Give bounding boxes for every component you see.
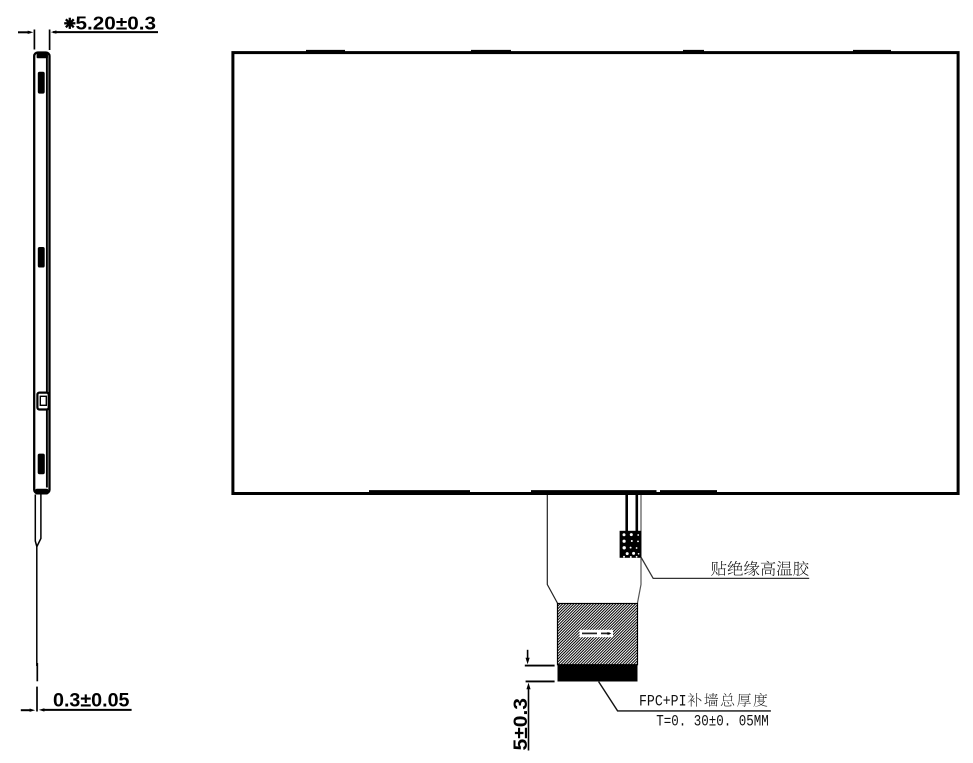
svg-text:T=0. 30±0. 05MM: T=0. 30±0. 05MM [656, 713, 769, 731]
svg-text:0.3±0.05: 0.3±0.05 [53, 691, 130, 712]
svg-text:5.20±0.3: 5.20±0.3 [76, 12, 157, 33]
svg-text:FPC+PI: FPC+PI [639, 692, 687, 710]
svg-text:5±0.3: 5±0.3 [511, 698, 532, 751]
